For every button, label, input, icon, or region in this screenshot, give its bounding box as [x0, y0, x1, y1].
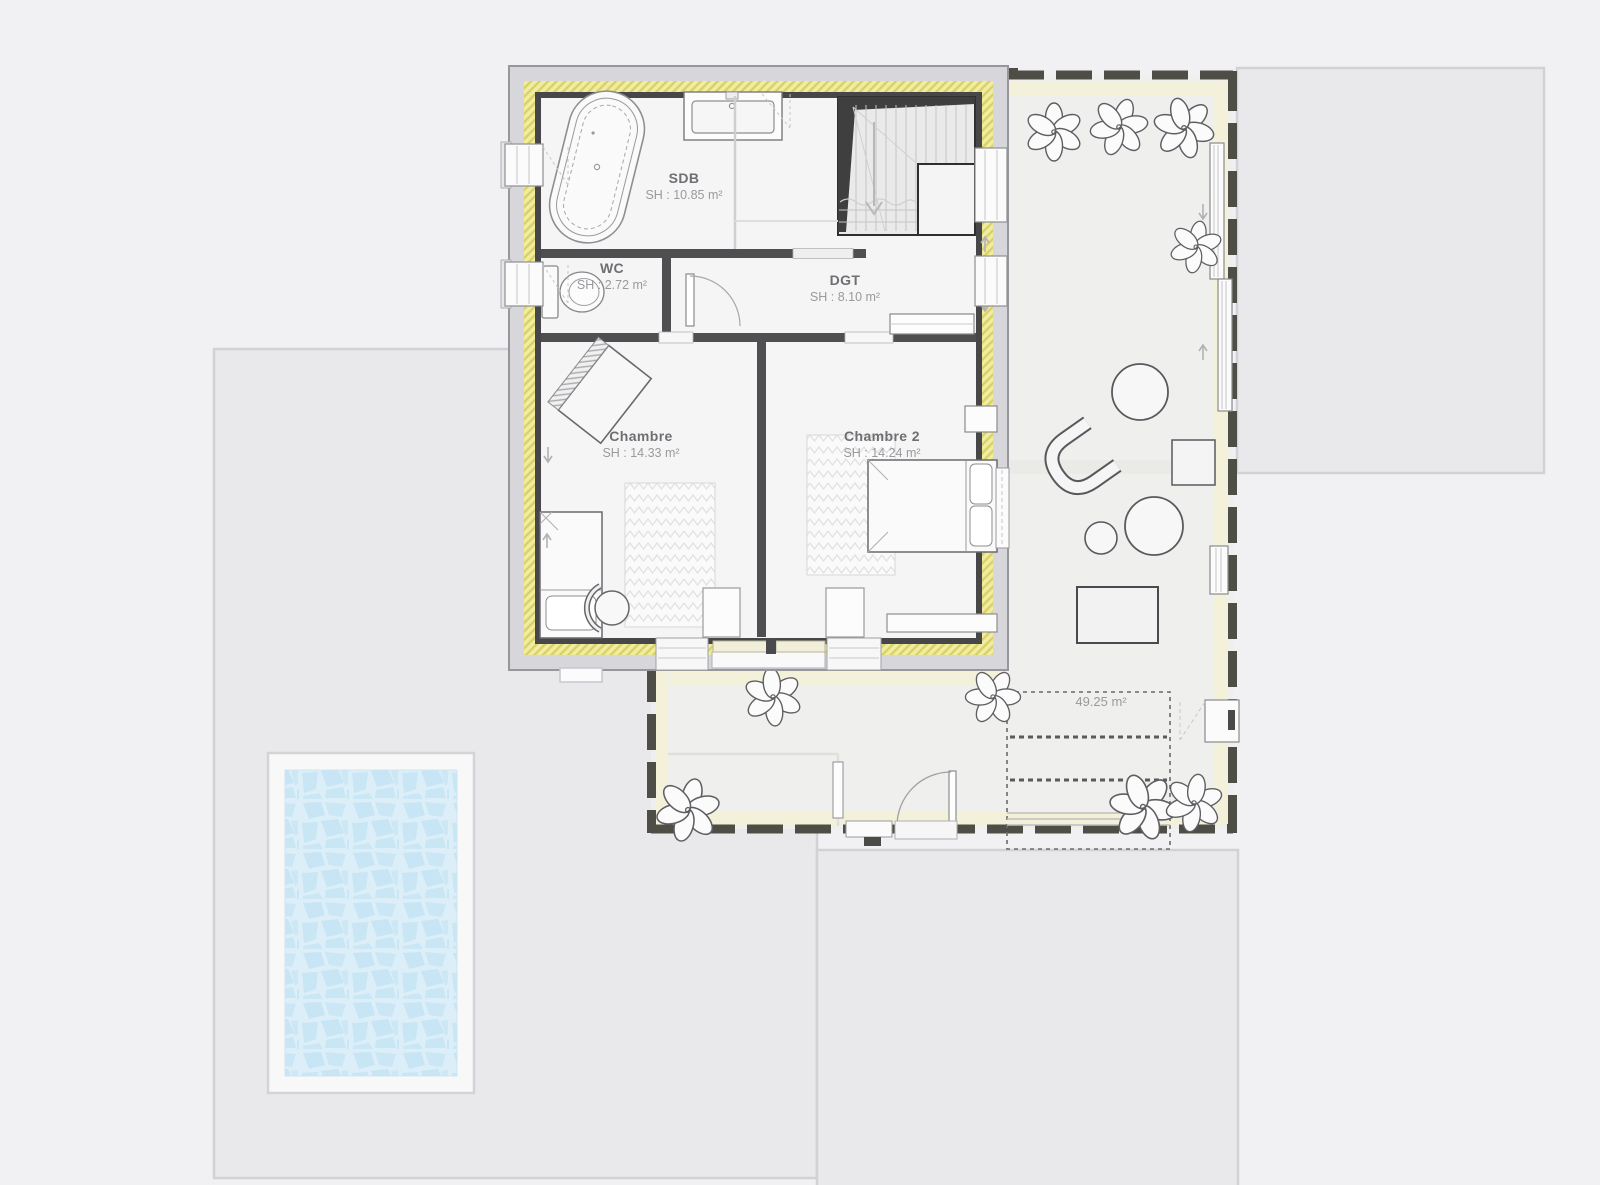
radiator[interactable]	[890, 314, 974, 334]
washbasin-icon[interactable]	[684, 92, 790, 140]
pool[interactable]	[268, 753, 474, 1093]
low-shelf[interactable]	[887, 614, 997, 632]
cabinet[interactable]	[703, 588, 740, 637]
window[interactable]	[975, 256, 1007, 306]
small-round-table[interactable]	[1085, 522, 1117, 554]
window[interactable]	[975, 148, 1007, 222]
staircase[interactable]	[838, 97, 975, 235]
window[interactable]	[656, 638, 708, 670]
bed-double[interactable]	[868, 460, 997, 552]
floor-plan-canvas: SDB SH : 10.85 m² WC SH : 2.72 m² DGT SH…	[0, 0, 1600, 1185]
terrace-window-right[interactable]	[1210, 546, 1228, 594]
window[interactable]	[996, 468, 1009, 548]
round-table[interactable]	[1125, 497, 1183, 555]
outdoor-table[interactable]	[1077, 587, 1158, 643]
ground-block-top-right[interactable]	[1237, 68, 1544, 473]
cabinet[interactable]	[826, 588, 864, 637]
side-table[interactable]	[1172, 440, 1215, 485]
round-table[interactable]	[1112, 364, 1168, 420]
floor-plan-drawing	[0, 0, 1600, 1185]
window[interactable]	[827, 638, 881, 670]
ground-block-bottom[interactable]	[817, 850, 1238, 1185]
terrace-window-bottom[interactable]	[846, 821, 892, 846]
building	[501, 66, 1009, 682]
pool-water	[285, 770, 457, 1076]
nightstand[interactable]	[965, 406, 997, 432]
door-leaf[interactable]	[833, 762, 843, 818]
sliding-door[interactable]	[712, 638, 825, 668]
rug[interactable]	[625, 483, 715, 627]
exterior-step	[560, 668, 602, 682]
stair-landing-notch	[918, 164, 975, 235]
